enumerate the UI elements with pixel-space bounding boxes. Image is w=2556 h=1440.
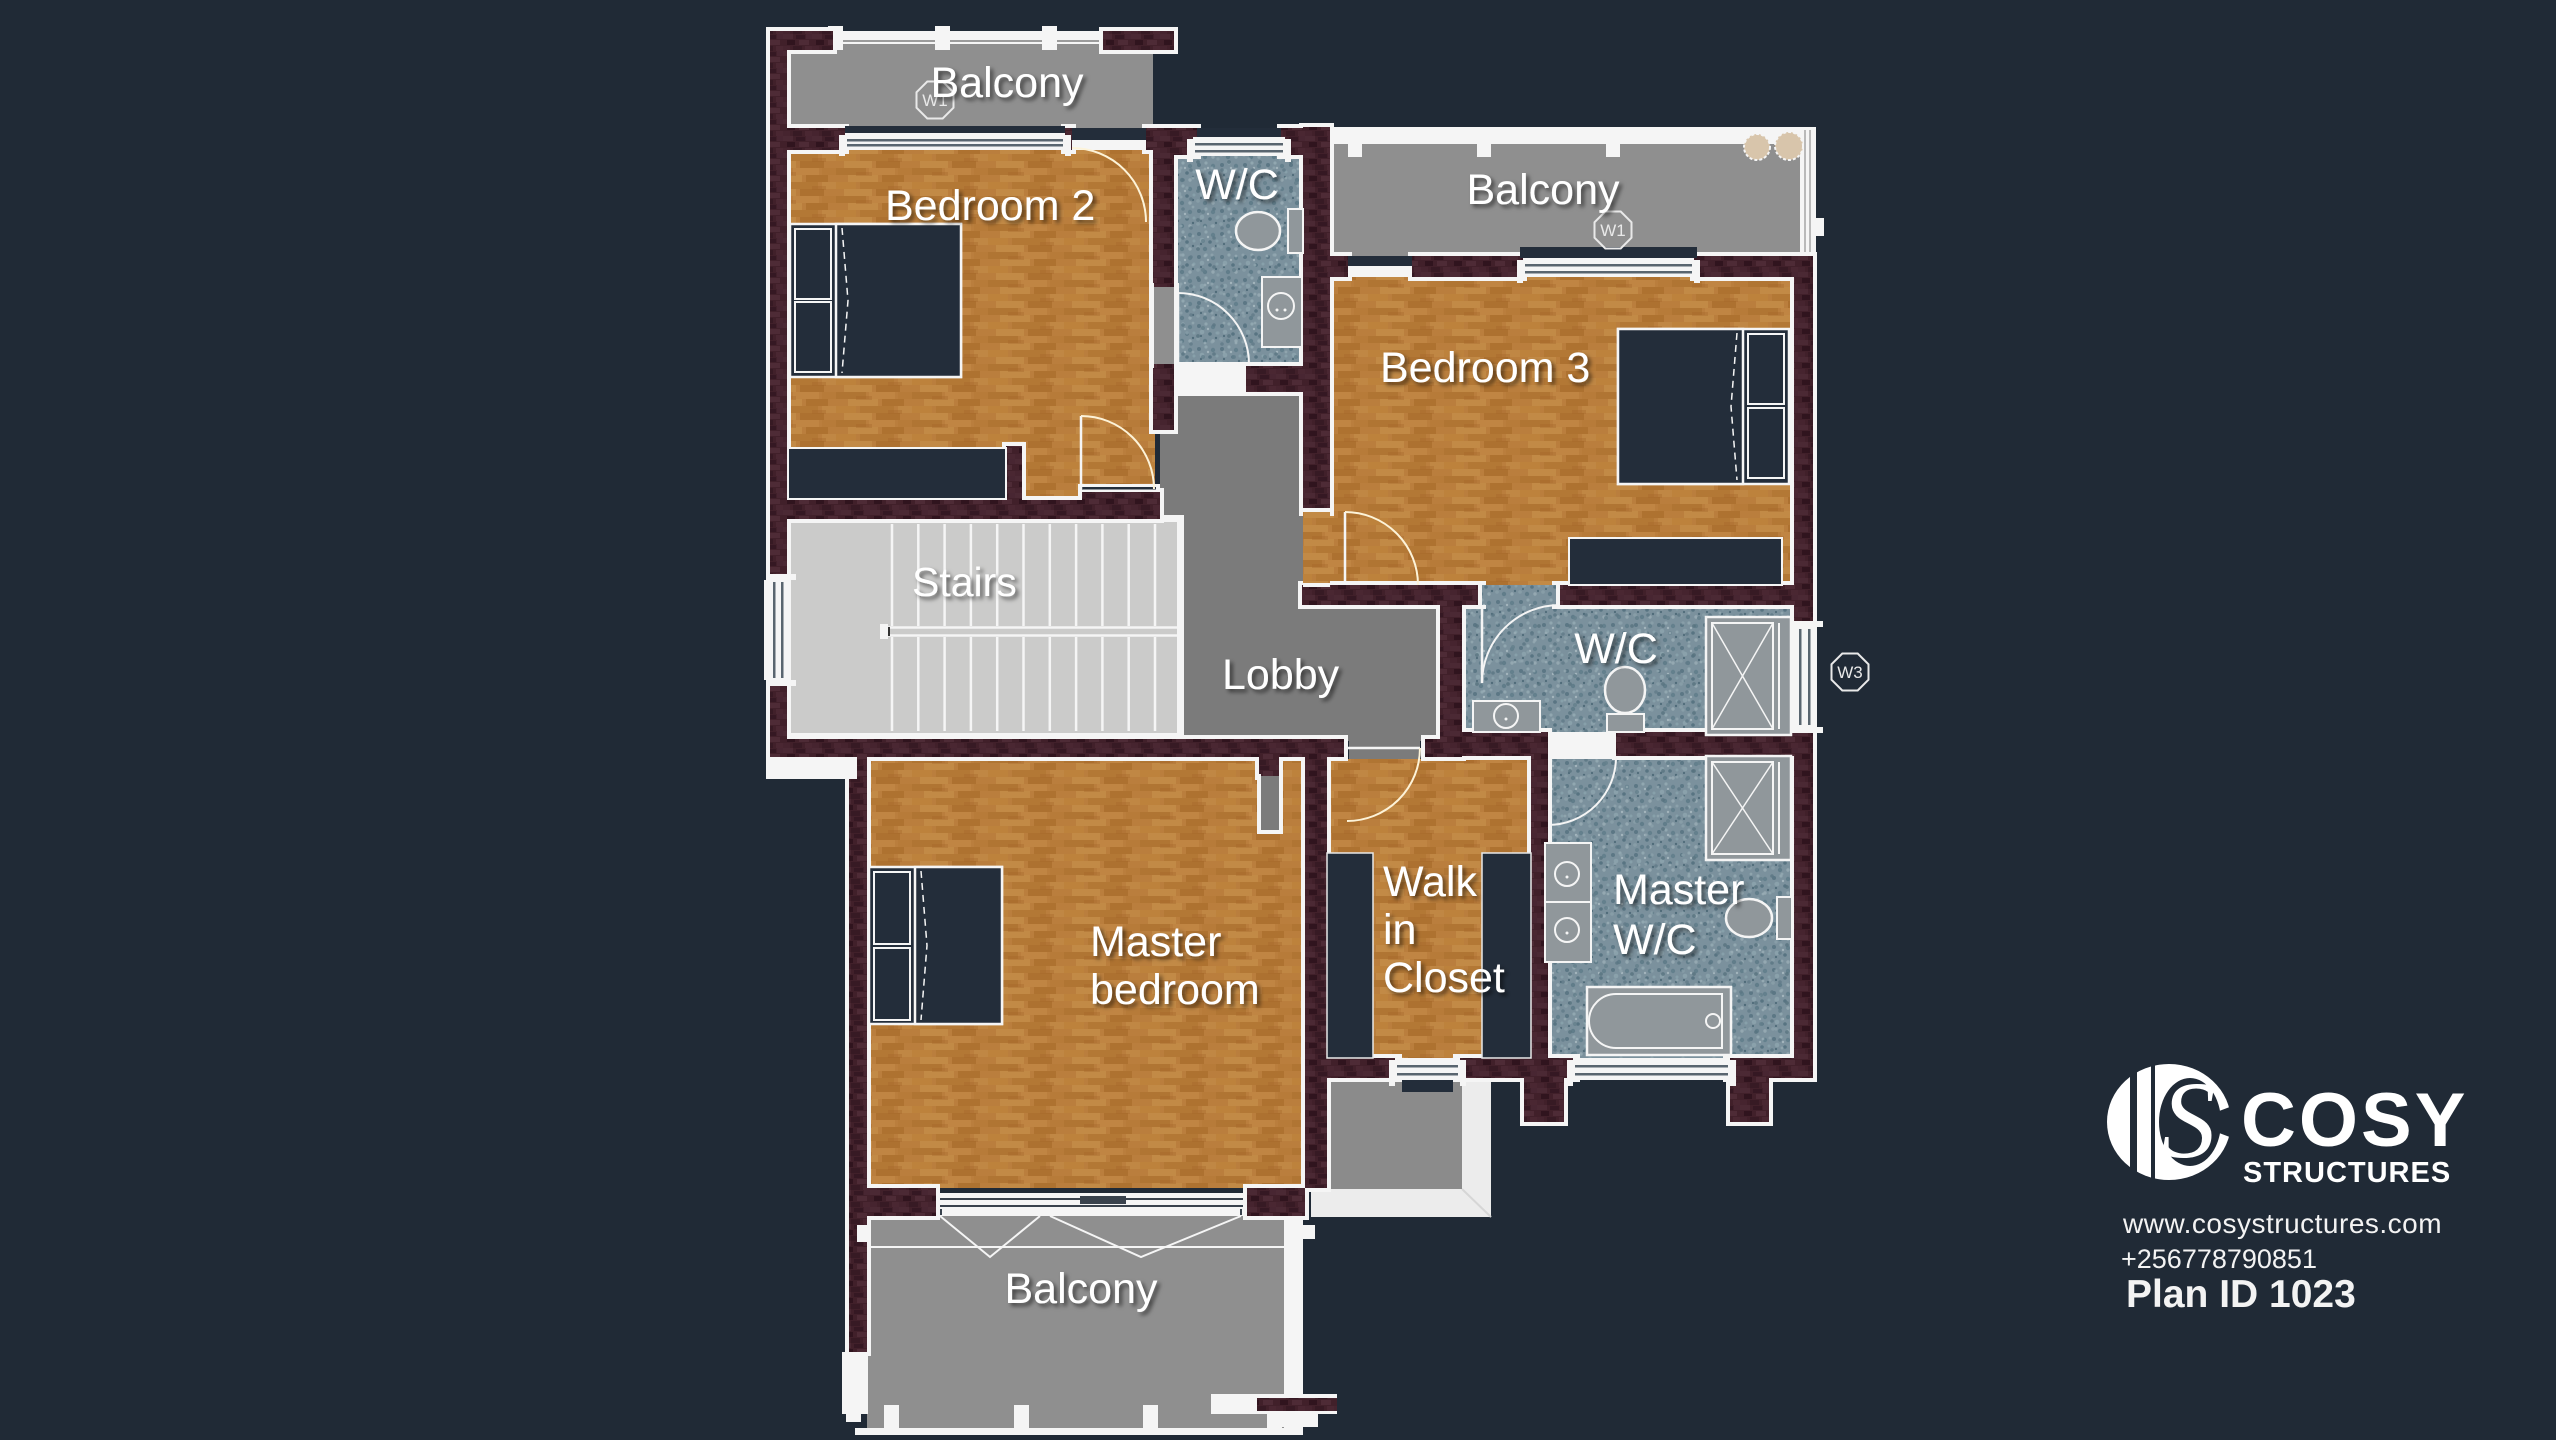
svg-text:Balcony: Balcony <box>1467 166 1620 214</box>
svg-text:STRUCTURES: STRUCTURES <box>2243 1157 2451 1189</box>
svg-text:Closet: Closet <box>1383 954 1505 1002</box>
svg-text:W/C: W/C <box>1574 625 1658 673</box>
svg-text:bedroom: bedroom <box>1090 966 1260 1014</box>
svg-text:Balcony: Balcony <box>931 59 1084 107</box>
svg-text:in: in <box>1383 906 1416 954</box>
svg-text:Balcony: Balcony <box>1005 1265 1158 1313</box>
svg-text:Stairs: Stairs <box>912 559 1017 605</box>
svg-text:Master: Master <box>1613 866 1744 914</box>
svg-text:Master: Master <box>1090 918 1221 966</box>
svg-text:Walk: Walk <box>1383 858 1477 906</box>
svg-text:Bedroom 2: Bedroom 2 <box>885 182 1095 230</box>
svg-text:Lobby: Lobby <box>1222 651 1340 699</box>
svg-text:www.cosystructures.com: www.cosystructures.com <box>2122 1208 2442 1239</box>
svg-text:Bedroom 3: Bedroom 3 <box>1380 344 1590 392</box>
svg-text:Plan ID 1023: Plan ID 1023 <box>2126 1273 2356 1316</box>
svg-text:W/C: W/C <box>1195 161 1279 209</box>
svg-text:S: S <box>2161 1059 2216 1181</box>
svg-text:W/C: W/C <box>1613 916 1697 964</box>
svg-text:+256778790851: +256778790851 <box>2121 1244 2317 1274</box>
svg-text:W3: W3 <box>1837 663 1863 682</box>
svg-text:W1: W1 <box>1600 221 1626 240</box>
svg-text:COSY: COSY <box>2241 1078 2468 1163</box>
